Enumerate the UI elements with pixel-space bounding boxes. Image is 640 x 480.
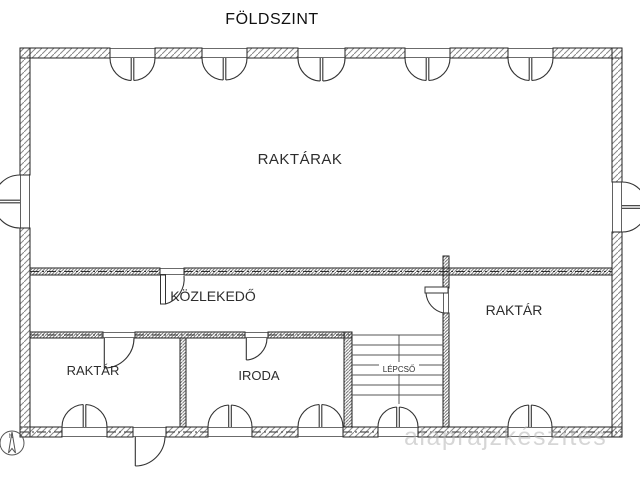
door-symbols bbox=[0, 58, 640, 466]
door-iroda bbox=[246, 338, 267, 360]
double-door-left-wall bbox=[0, 175, 20, 228]
double-door-right-wall bbox=[622, 182, 640, 232]
floor-plan-page: FÖLDSZINT bbox=[0, 0, 640, 480]
door-leaf-corridor bbox=[161, 275, 166, 304]
double-door-top-4 bbox=[405, 58, 450, 81]
room-label-iroda: IRODA bbox=[238, 368, 280, 383]
double-door-bottom-3 bbox=[298, 405, 343, 428]
room-label-raktarak: RAKTÁRAK bbox=[258, 151, 343, 168]
door-exterior-bottom bbox=[135, 437, 165, 466]
floor-plan-canvas: FÖLDSZINT bbox=[0, 0, 640, 480]
double-door-top-5 bbox=[508, 58, 553, 81]
room-label-raktar-left: RAKTÁR bbox=[67, 363, 120, 378]
double-door-bottom-2 bbox=[208, 405, 252, 427]
page-title: FÖLDSZINT bbox=[225, 10, 318, 28]
north-arrow-icon: N bbox=[0, 431, 24, 455]
door-frames bbox=[21, 49, 622, 437]
north-label: N bbox=[9, 433, 14, 440]
double-door-top-2 bbox=[202, 58, 247, 80]
room-label-lepcso: LÉPCSŐ bbox=[383, 365, 415, 374]
double-door-bottom-1 bbox=[62, 405, 107, 428]
outer-walls bbox=[20, 48, 622, 437]
room-label-raktar-right: RAKTÁR bbox=[486, 302, 543, 318]
door-leaf-raktar-right bbox=[425, 287, 448, 293]
watermark-text: alaprajzkészítés bbox=[404, 423, 607, 451]
door-arc-raktar-right bbox=[426, 293, 444, 313]
double-door-top-3 bbox=[298, 58, 345, 81]
interior-walls bbox=[30, 256, 612, 427]
double-door-top-1 bbox=[110, 58, 155, 81]
room-labels: RAKTÁRAK KÖZLEKEDŐ RAKTÁR RAKTÁR IRODA L… bbox=[67, 151, 543, 383]
room-label-kozlekedo: KÖZLEKEDŐ bbox=[170, 287, 256, 304]
